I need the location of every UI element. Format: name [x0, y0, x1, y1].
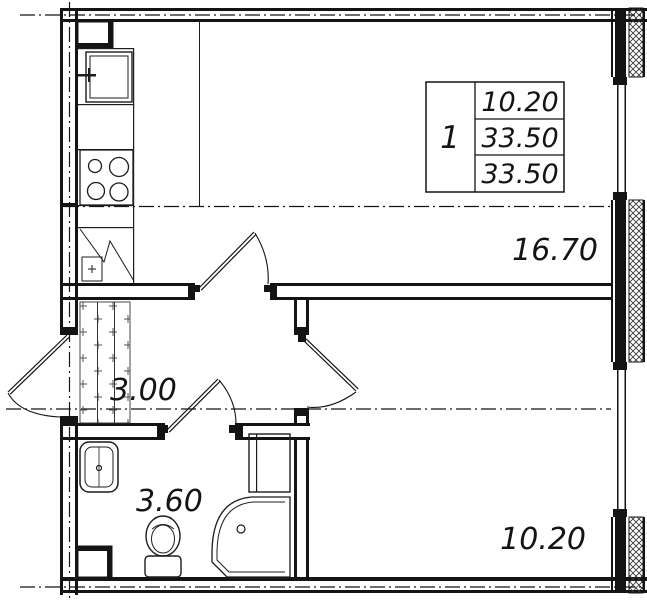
door-hinge-block — [298, 334, 306, 342]
wall-bottom — [60, 577, 647, 593]
info-table-living-area: 10.20 — [481, 87, 558, 118]
info-table-total-area: 33.50 — [481, 123, 558, 154]
toilet-tank — [145, 556, 181, 577]
wall-pier-top — [611, 8, 645, 77]
info-table-overall-area: 33.50 — [481, 159, 558, 190]
door-swing-arc — [219, 380, 236, 424]
shower-corner — [212, 497, 290, 577]
door-living — [193, 232, 271, 292]
wall-pier-bottom — [611, 517, 645, 593]
vent-shaft-bath — [78, 546, 112, 577]
burner-icon — [110, 158, 129, 177]
faucet-icon — [78, 74, 96, 77]
partition-living-hall — [60, 283, 612, 300]
partition-hall-bedroom — [294, 300, 309, 425]
door-swing-arc — [307, 392, 356, 407]
door-bedroom — [298, 334, 358, 407]
burner-icon — [110, 183, 128, 201]
door-hinge-block — [61, 327, 70, 335]
washbasin — [80, 442, 118, 492]
kitchen-sink — [78, 52, 132, 102]
vent-shaft-kitchen — [78, 20, 113, 48]
door-swing-arc — [255, 233, 268, 284]
kitchen-zone-boundary — [199, 22, 200, 207]
counter-break-symbol — [80, 229, 134, 281]
info-table-flat-number: 1 — [440, 120, 460, 156]
window-living — [613, 77, 627, 200]
wall-pier-middle — [611, 200, 645, 362]
burner-icon — [89, 160, 102, 173]
door-hinge-block — [193, 285, 200, 292]
partition-bath-top — [60, 423, 310, 440]
info-table: 1 10.20 33.50 33.50 — [426, 82, 564, 192]
drain-icon — [237, 525, 245, 533]
partition-bath-bedroom — [294, 440, 309, 577]
room-label-bath: 3.60 — [136, 484, 203, 519]
room-label-living: 16.70 — [512, 233, 598, 268]
door-hinge-block — [160, 425, 168, 433]
window-bedroom — [613, 362, 627, 517]
room-label-hall: 3.00 — [110, 373, 177, 408]
washing-machine — [249, 434, 290, 492]
stove — [80, 150, 133, 205]
toilet — [145, 516, 181, 577]
floor-plan-drawing: 16.70 3.00 3.60 10.20 1 10.20 33.50 33.5… — [0, 0, 647, 600]
room-label-bedroom: 10.20 — [500, 522, 586, 557]
burner-icon — [88, 183, 105, 200]
door-swing-arc — [8, 393, 60, 417]
floor-plan-canvas: 16.70 3.00 3.60 10.20 1 10.20 33.50 33.5… — [0, 0, 647, 600]
wall-right — [611, 8, 645, 593]
